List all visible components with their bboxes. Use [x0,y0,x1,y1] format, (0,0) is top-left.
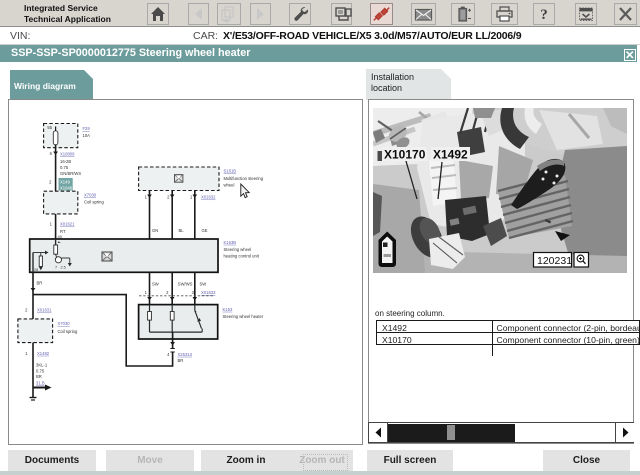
svg-text:K153B: K153B [224,240,237,245]
svg-text:Multifunction steering: Multifunction steering [224,176,264,181]
svg-text:0.75: 0.75 [36,368,45,373]
svg-text:K153: K153 [223,307,233,312]
svg-text:X149: X149 [60,180,70,185]
svg-text:28: 28 [34,268,38,272]
svg-text:31.B: 31.B [36,381,45,386]
svg-text:6: 6 [50,151,53,156]
svg-text:wheel: wheel [224,183,235,188]
svg-text:X1482: X1482 [37,351,50,356]
svg-text:2.5: 2.5 [61,266,66,270]
svg-text:10A: 10A [83,133,91,138]
svg-text:X01621: X01621 [60,222,75,227]
svg-text:heating control unit: heating control unit [224,254,260,259]
svg-text:SW: SW [152,282,159,287]
svg-text:SW/WS: SW/WS [178,282,193,287]
svg-text:Coil spring: Coil spring [58,329,78,334]
svg-text:S161B: S161B [224,169,237,174]
svg-text:Steering wheel heater: Steering wheel heater [223,314,264,319]
svg-text:X1492: X1492 [433,148,468,162]
svg-text:55: 55 [47,125,52,130]
svg-text:1: 1 [25,351,28,356]
svg-text:2: 2 [25,308,28,313]
svg-text:120231: 120231 [537,255,572,267]
svg-text:GN: GN [152,228,158,233]
svg-text:BR: BR [37,280,43,285]
svg-text:2: 2 [49,180,52,185]
svg-text:X7030: X7030 [84,193,97,198]
svg-text:GE: GE [202,228,208,233]
svg-text:1: 1 [145,194,148,199]
svg-text:BL: BL [179,228,185,233]
svg-text:0.75: 0.75 [60,165,69,170]
svg-text:2: 2 [166,290,169,295]
svg-text:?: ? [540,7,548,23]
svg-text:X25313: X25313 [178,352,193,357]
svg-text:3KL-1: 3KL-1 [36,363,48,368]
svg-text:4: 4 [167,352,170,357]
svg-text:F29: F29 [83,126,91,131]
svg-text:X01633: X01633 [201,290,216,295]
svg-text:1: 1 [145,290,148,295]
svg-text:Steering wheel: Steering wheel [224,247,252,252]
svg-text:Coil spring: Coil spring [84,200,104,205]
svg-text:7: 7 [55,266,57,270]
svg-text:BR: BR [36,374,42,379]
svg-text:GN/BR/WS: GN/BR/WS [60,171,81,176]
svg-text:BR: BR [178,358,184,363]
svg-text:1: 1 [190,195,193,200]
svg-text:X01632: X01632 [201,195,216,200]
svg-text:X10170: X10170 [384,148,426,162]
svg-text:X01631: X01631 [37,308,52,313]
svg-text:X10809: X10809 [60,152,75,157]
svg-text:X7030: X7030 [58,321,71,326]
svg-text:SW: SW [200,282,207,287]
svg-text:16-2B: 16-2B [60,159,71,164]
svg-text:2: 2 [167,194,170,199]
svg-text:1: 1 [50,222,53,227]
svg-text:X1046: X1046 [60,185,73,190]
